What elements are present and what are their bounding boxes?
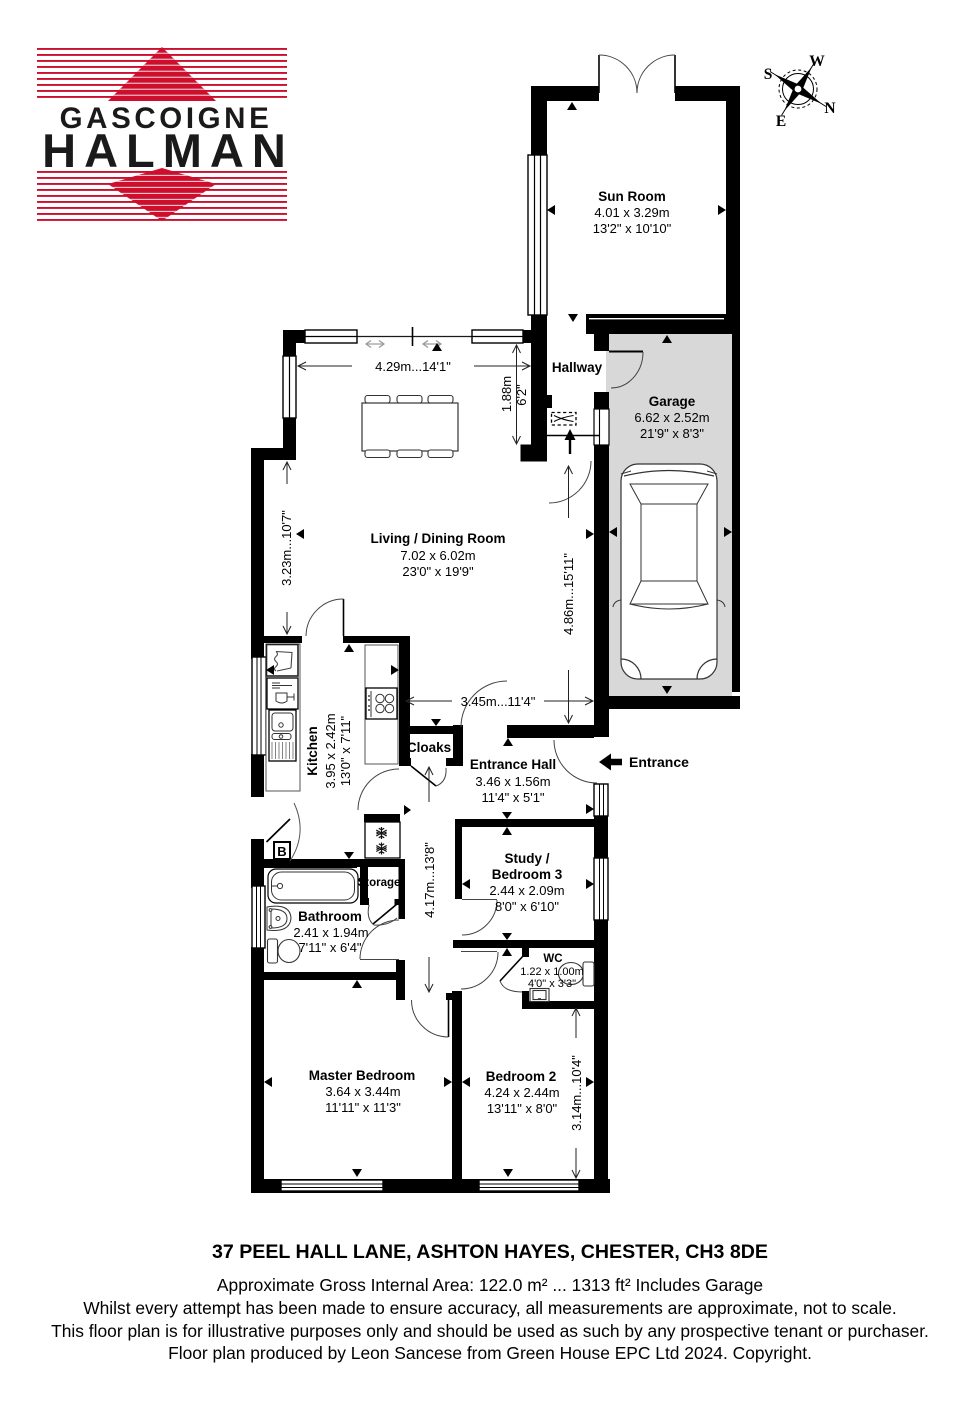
svg-text:Entrance: Entrance xyxy=(629,754,689,770)
svg-text:4.17m...13'8": 4.17m...13'8" xyxy=(422,842,437,918)
svg-text:11'11" x 11'3": 11'11" x 11'3" xyxy=(325,1100,401,1115)
svg-text:B: B xyxy=(277,844,286,859)
svg-text:3.45m...11'4": 3.45m...11'4" xyxy=(461,694,536,709)
svg-text:6'2": 6'2" xyxy=(514,384,529,406)
svg-text:Entrance Hall: Entrance Hall xyxy=(470,757,556,772)
svg-text:Bathroom: Bathroom xyxy=(298,909,362,924)
svg-text:23'0" x 19'9": 23'0" x 19'9" xyxy=(402,564,474,579)
svg-text:2.41 x 1.94m: 2.41 x 1.94m xyxy=(293,925,368,940)
svg-text:21'9" x 8'3": 21'9" x 8'3" xyxy=(640,426,704,441)
svg-text:Kitchen: Kitchen xyxy=(305,726,320,776)
svg-text:Approximate Gross Internal Are: Approximate Gross Internal Area: 122.0 m… xyxy=(217,1275,763,1295)
svg-text:Bedroom 3: Bedroom 3 xyxy=(492,867,563,882)
svg-text:Master Bedroom: Master Bedroom xyxy=(309,1068,416,1083)
svg-text:6.62 x 2.52m: 6.62 x 2.52m xyxy=(634,410,709,425)
svg-text:Study /: Study / xyxy=(504,851,549,866)
svg-text:Living / Dining Room: Living / Dining Room xyxy=(371,531,506,546)
svg-text:13'2" x 10'10": 13'2" x 10'10" xyxy=(593,221,672,236)
svg-text:W: W xyxy=(809,53,825,70)
svg-text:Bedroom 2: Bedroom 2 xyxy=(486,1069,557,1084)
svg-text:7.02 x 6.02m: 7.02 x 6.02m xyxy=(400,548,475,563)
svg-text:3.64 x 3.44m: 3.64 x 3.44m xyxy=(325,1084,400,1099)
svg-text:S: S xyxy=(764,66,773,83)
svg-text:4.29m...14'1": 4.29m...14'1" xyxy=(375,359,451,374)
svg-text:4.24 x 2.44m: 4.24 x 2.44m xyxy=(484,1085,559,1100)
svg-text:2.44 x 2.09m: 2.44 x 2.09m xyxy=(489,883,564,898)
svg-text:3.23m...10'7": 3.23m...10'7" xyxy=(279,510,294,586)
svg-text:7'11" x 6'4": 7'11" x 6'4" xyxy=(298,940,361,955)
svg-text:This floor plan is for illustr: This floor plan is for illustrative purp… xyxy=(51,1321,929,1341)
svg-text:N: N xyxy=(824,100,835,117)
svg-text:E: E xyxy=(776,113,786,130)
svg-text:37 PEEL HALL LANE, ASHTON HAYE: 37 PEEL HALL LANE, ASHTON HAYES, CHESTER… xyxy=(212,1241,768,1263)
svg-text:Hallway: Hallway xyxy=(552,360,603,375)
svg-text:Storage: Storage xyxy=(358,877,401,889)
svg-text:11'4" x 5'1": 11'4" x 5'1" xyxy=(481,790,544,805)
svg-text:Sun Room: Sun Room xyxy=(598,189,666,204)
svg-text:Whilst every attempt has been: Whilst every attempt has been made to en… xyxy=(83,1298,897,1318)
svg-text:WC: WC xyxy=(543,953,562,965)
svg-text:3.46 x 1.56m: 3.46 x 1.56m xyxy=(475,774,550,789)
svg-text:3.95 x 2.42m: 3.95 x 2.42m xyxy=(323,713,338,788)
svg-text:Garage: Garage xyxy=(649,394,696,409)
svg-text:13'0" x 7'11": 13'0" x 7'11" xyxy=(338,715,353,786)
svg-text:HALMAN: HALMAN xyxy=(42,124,294,177)
svg-text:1.22 x 1.00m: 1.22 x 1.00m xyxy=(520,966,584,978)
svg-text:13'11" x 8'0": 13'11" x 8'0" xyxy=(487,1101,558,1116)
svg-text:4.86m...15'11": 4.86m...15'11" xyxy=(561,553,576,635)
svg-text:4'0" x 3'3": 4'0" x 3'3" xyxy=(528,978,576,990)
svg-text:3.14m...10'4": 3.14m...10'4" xyxy=(569,1055,584,1131)
svg-text:8'0" x 6'10": 8'0" x 6'10" xyxy=(495,899,559,914)
svg-text:Cloaks: Cloaks xyxy=(407,740,451,755)
svg-text:4.01 x 3.29m: 4.01 x 3.29m xyxy=(594,205,669,220)
svg-text:Floor plan produced by Leon Sa: Floor plan produced by Leon Sancese from… xyxy=(168,1343,812,1363)
svg-text:1.88m: 1.88m xyxy=(499,376,514,412)
